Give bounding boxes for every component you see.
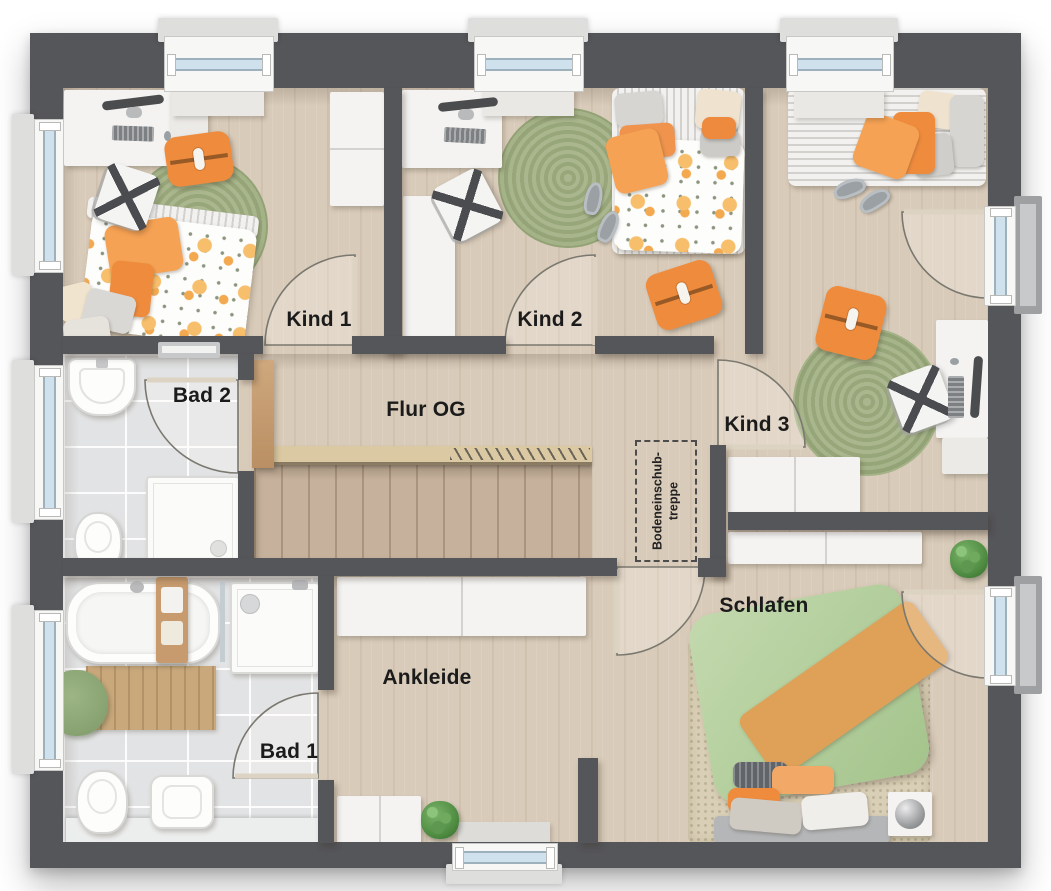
wall-kind3-schlafen — [728, 512, 988, 530]
room-label-kind3: Kind 3 — [724, 413, 789, 437]
kind1-floor-cushion-with-toy — [163, 130, 235, 189]
kind3-desk-return — [942, 438, 988, 474]
room-label-bad1: Bad 1 — [260, 740, 318, 764]
kind1-side-window-sill — [12, 114, 34, 276]
room-label-kind1: Kind 1 — [286, 308, 351, 332]
floor-plan-upper-storey: Bodeneinschub- treppe Kind 1 — [0, 0, 1051, 891]
wall-bad1-east-upper — [318, 576, 334, 690]
wall-kind1-kind2 — [384, 88, 402, 354]
kind3-balcony-plate — [1014, 196, 1042, 314]
attic-stairs-annotation-text: Bodeneinschub- treppe — [650, 441, 681, 561]
kind3-window-board — [794, 88, 884, 118]
wall-flur-kind3-top — [595, 336, 714, 354]
bad1-shower — [230, 582, 320, 674]
bad2-towel — [162, 346, 216, 353]
kind1-mouse — [164, 131, 171, 141]
kind3-keyboard — [948, 376, 964, 418]
kind3-balcony-door — [984, 206, 1016, 306]
schlafen-pillow-orange-light — [772, 766, 834, 794]
bad2-towel-rail — [158, 342, 220, 358]
bad2-shower-drain — [210, 540, 227, 557]
kind1-keyboard — [112, 125, 154, 141]
kind3-pillow-gray — [950, 95, 984, 167]
bad2-sink-faucet — [96, 358, 108, 368]
bad1-caddy-towel-2 — [161, 621, 183, 645]
wall-kind2-flur — [352, 336, 506, 354]
bad1-bath-caddy — [156, 577, 188, 663]
ankleide-window — [452, 843, 558, 871]
schlafen-sideboard — [728, 532, 922, 564]
ankleide-window-board — [458, 822, 550, 842]
schlafen-balcony-plate — [1014, 576, 1042, 694]
room-label-kind2: Kind 2 — [517, 308, 582, 332]
bad1-bathtub-faucet — [130, 581, 144, 593]
wall-bad1-east-lower — [318, 780, 334, 843]
kind1-window-board — [172, 88, 264, 116]
kind1-wardrobe — [330, 92, 384, 206]
ankleide-plant — [421, 801, 459, 839]
bad1-window-sill — [12, 605, 34, 774]
kind1-window — [164, 36, 274, 92]
kind1-side-window — [34, 119, 64, 273]
kind3-mouse — [950, 358, 959, 365]
kind3-window — [786, 36, 894, 92]
kind3-sideboard — [728, 457, 860, 513]
bad2-shower — [146, 476, 240, 568]
bad1-bidet — [150, 775, 214, 829]
kind2-window — [474, 36, 584, 92]
attic-stairs-line2: treppe — [666, 482, 680, 520]
schlafen-plant — [950, 540, 988, 578]
kind1-monitor-stand — [126, 107, 142, 118]
staircase-treads — [254, 462, 592, 562]
bad1-glass-screen — [220, 582, 225, 662]
bad2-sink — [68, 358, 136, 416]
schlafen-lamp-sphere — [895, 799, 925, 829]
wall-corner-schlafen-door — [698, 558, 726, 577]
flur-wood-cabinet — [252, 360, 274, 468]
bad1-shower-head — [240, 594, 260, 614]
bad1-caddy-towel-1 — [161, 587, 183, 613]
schlafen-balcony-door — [984, 586, 1016, 686]
wall-kind2-kind3 — [745, 88, 763, 354]
wall-ankleide-schlafen-stub — [578, 758, 598, 843]
bad1-bathtub — [66, 582, 220, 664]
bad1-shower-faucet — [292, 580, 308, 590]
kind2-pillow-orange-2 — [702, 117, 736, 139]
wall-bad2-east-lower — [238, 471, 254, 562]
kind2-monitor-stand — [458, 109, 474, 120]
ankleide-wardrobe — [337, 577, 586, 636]
bad1-bathtub-basin — [76, 592, 210, 654]
room-label-ankleide: Ankleide — [382, 666, 471, 690]
staircase-balusters — [450, 448, 590, 460]
bad1-window — [34, 610, 64, 771]
kind1-desk-chair — [92, 161, 161, 233]
bad2-window-sill — [12, 360, 34, 523]
outer-wall-right — [988, 33, 1021, 868]
attic-stairs-annotation-box: Bodeneinschub- treppe — [635, 440, 697, 562]
kind2-keyboard — [444, 127, 487, 144]
room-label-bad2: Bad 2 — [173, 384, 231, 408]
schlafen-pillow-beige — [729, 797, 804, 835]
wall-bad1-ankleide-north — [63, 558, 617, 576]
wall-bad2-east-upper — [238, 354, 254, 380]
kind3-desk-chair — [886, 363, 957, 436]
room-label-schlafen: Schlafen — [719, 594, 808, 618]
attic-stairs-line1: Bodeneinschub- — [650, 452, 664, 550]
bad2-window — [34, 365, 64, 520]
ankleide-sideboard — [337, 796, 421, 843]
bad1-toilet — [76, 770, 128, 834]
schlafen-pillow-white — [801, 791, 870, 831]
bad1-bidet-bowl — [162, 785, 202, 819]
bad2-sink-bowl — [79, 368, 125, 404]
room-label-flur: Flur OG — [386, 398, 466, 422]
